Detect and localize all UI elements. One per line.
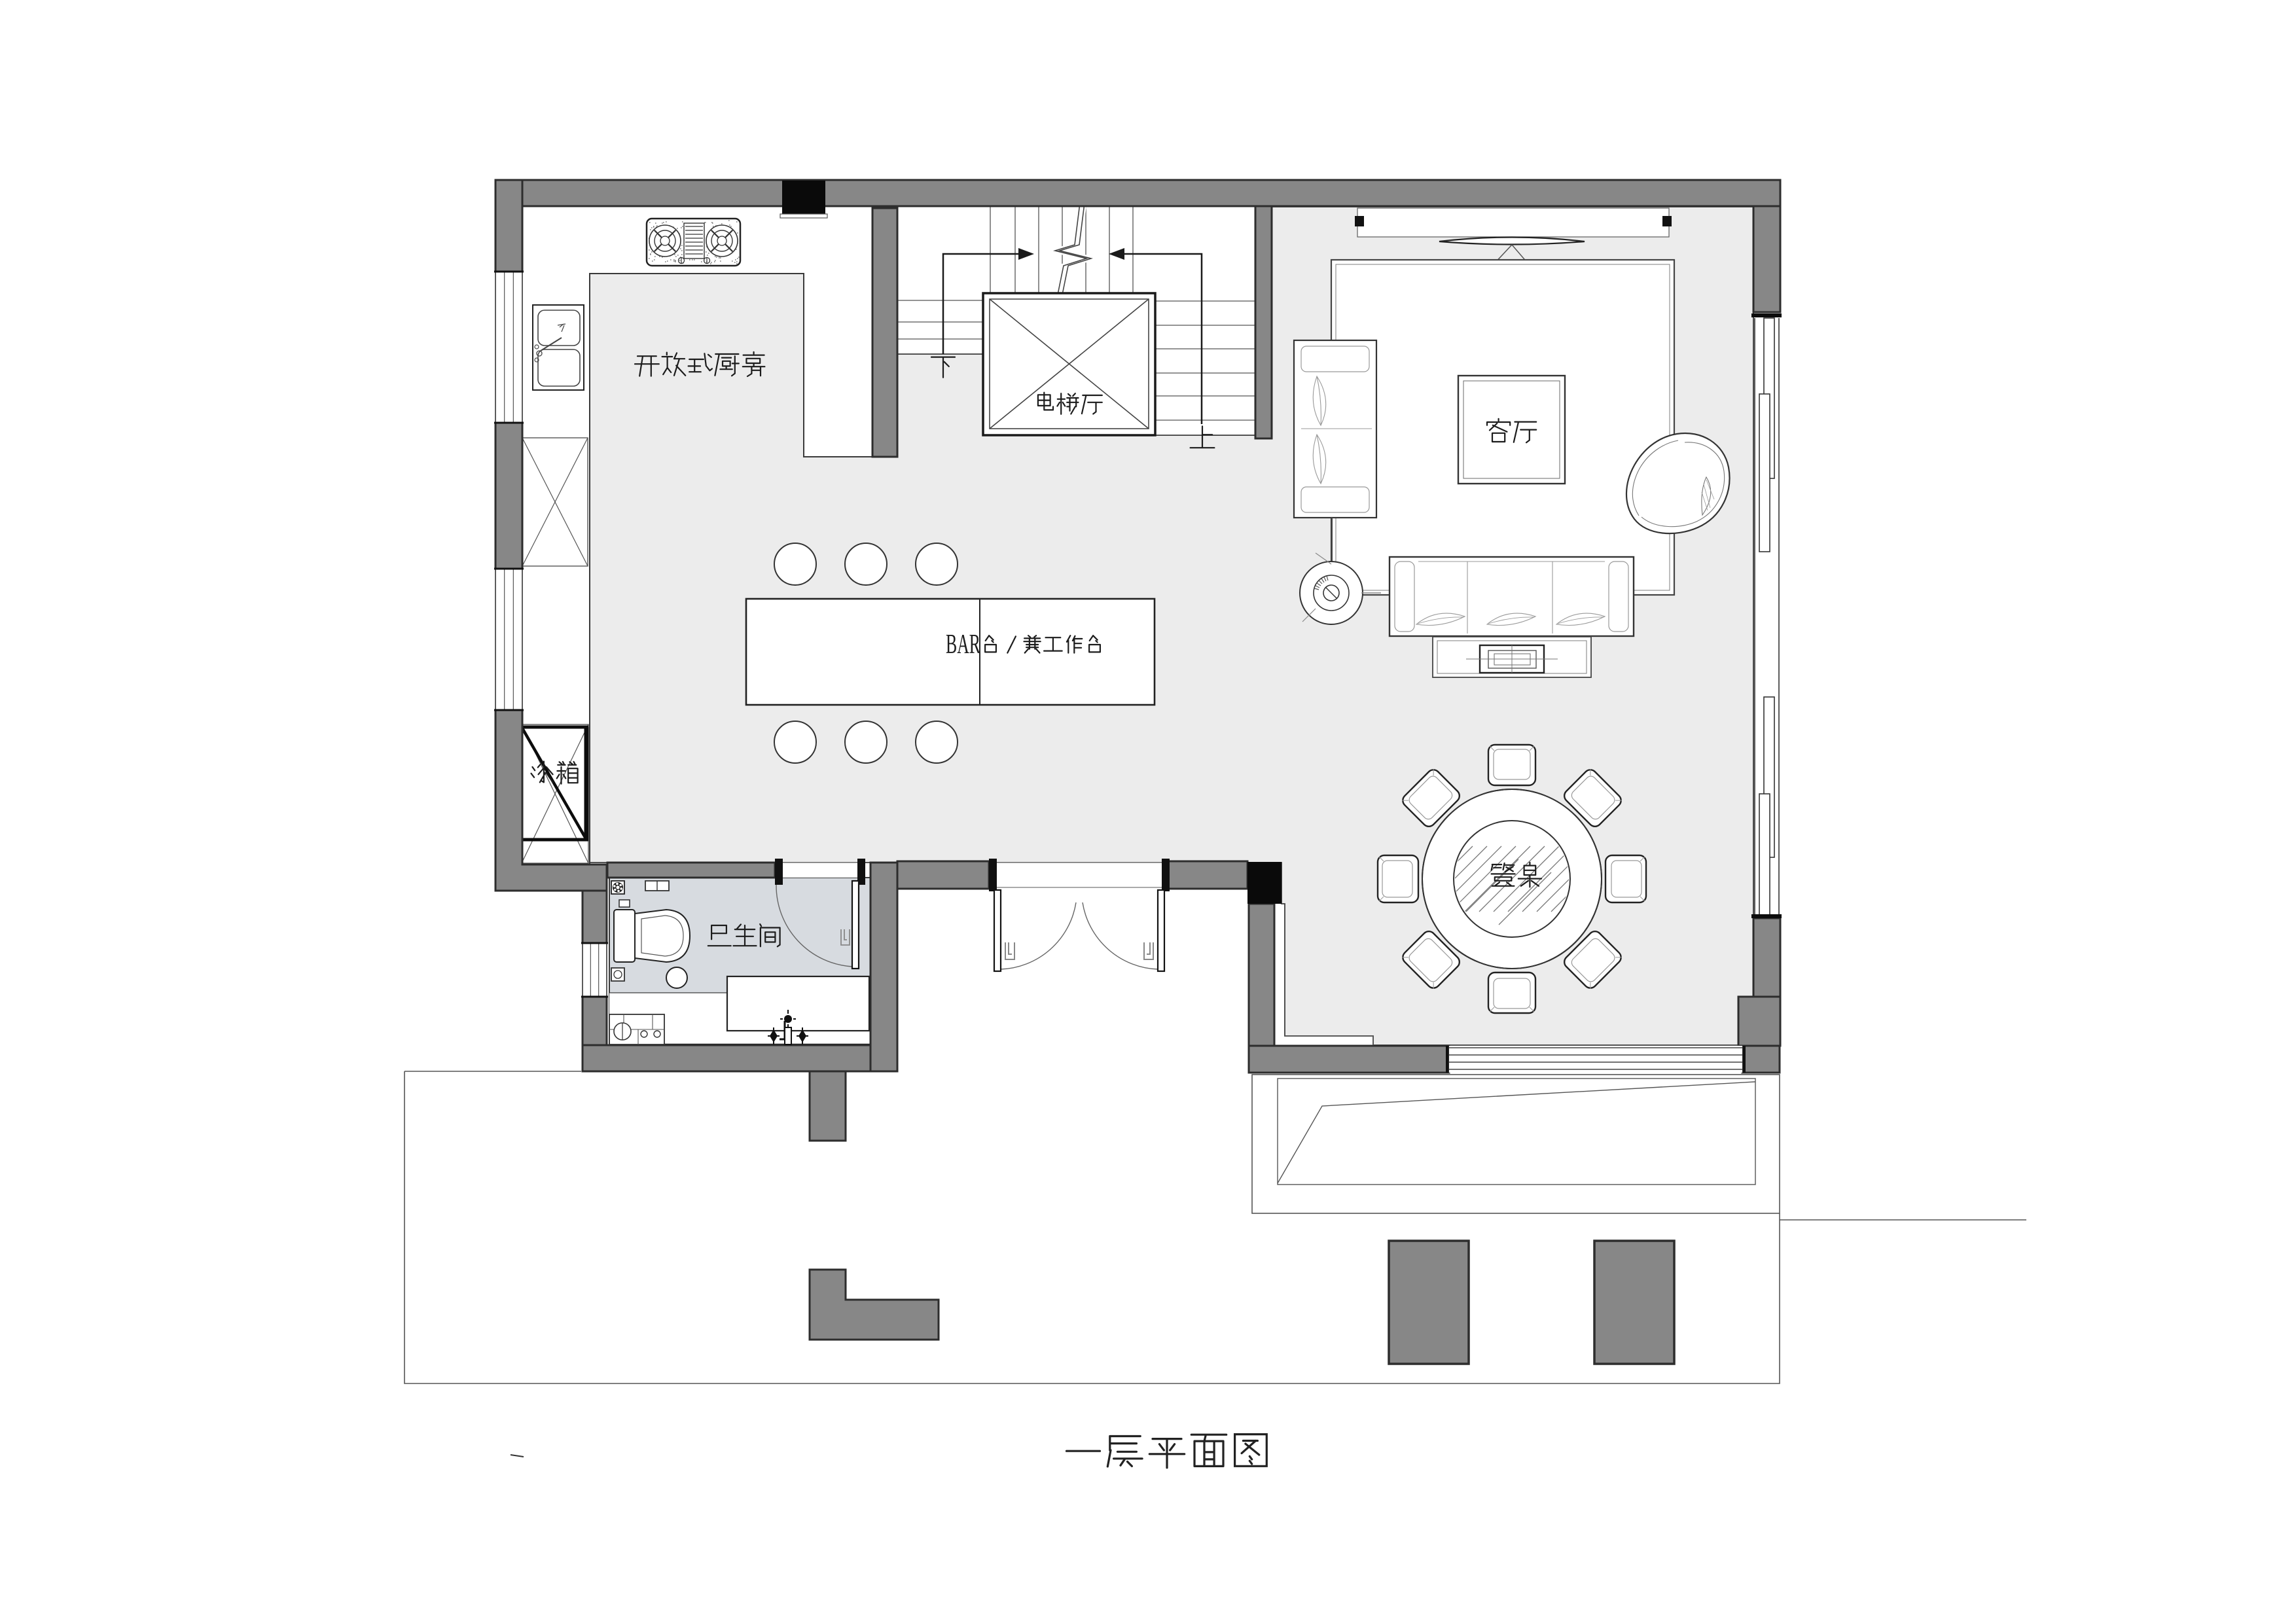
svg-text:BAR: BAR: [946, 630, 980, 660]
